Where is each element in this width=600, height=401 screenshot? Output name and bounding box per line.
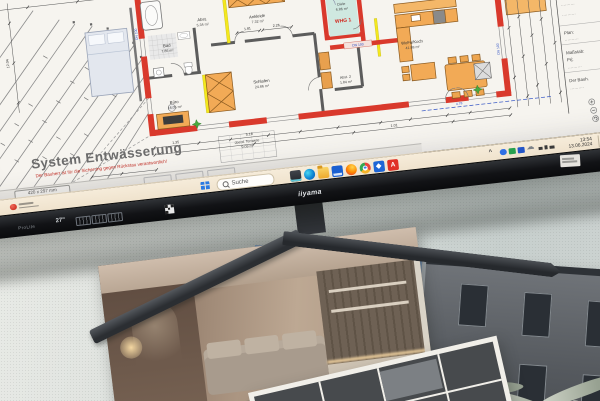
- render-window: [516, 364, 547, 401]
- svg-text:Prj:: Prj:: [567, 57, 574, 63]
- tray-app-icon[interactable]: [508, 147, 515, 154]
- hdmi-badge-icon: [75, 216, 91, 227]
- svg-text:9.09 m²: 9.09 m²: [241, 144, 254, 149]
- onedrive-icon[interactable]: ☁: [526, 142, 535, 152]
- chrome-icon[interactable]: [359, 162, 371, 174]
- svg-text:··········: ··········: [561, 1, 575, 8]
- svg-text:16.05 m²: 16.05 m²: [167, 105, 182, 111]
- firefox-icon[interactable]: [345, 163, 357, 175]
- bezel-sticker: [560, 154, 581, 167]
- widget-text-line: [19, 205, 39, 209]
- render-window: [585, 300, 600, 348]
- file-explorer-icon[interactable]: [317, 166, 329, 178]
- tray-caret-icon[interactable]: ^: [488, 149, 492, 155]
- monitor-size-label: 27": [55, 217, 65, 224]
- spec-badge-icon: [107, 212, 123, 223]
- svg-text:··········: ··········: [568, 64, 582, 71]
- svg-text:24.86 m²: 24.86 m²: [255, 84, 270, 90]
- room-labels: Abst. 5.34 m² Ankleide 7.32 m² Bad 7.86 …: [158, 0, 433, 157]
- svg-text:Der Bauh.: Der Bauh.: [569, 76, 589, 83]
- svg-text:41.88 m²: 41.88 m²: [405, 45, 420, 51]
- zoom-toolbar[interactable]: [588, 98, 599, 122]
- desktop-app-icon[interactable]: [290, 169, 302, 181]
- tray-app-icon[interactable]: [517, 146, 524, 153]
- dim-label: 12.04: [5, 59, 10, 68]
- svg-text:Bad: Bad: [163, 42, 172, 48]
- dim-label: 5.18: [246, 132, 253, 137]
- bedroom-left: [83, 8, 141, 107]
- title-block: ·········· ·········· Plan: ·········· M…: [556, 0, 600, 114]
- dim-label: 2.26: [273, 23, 280, 28]
- dim-label: 1.81: [244, 26, 251, 31]
- monitor-brand-logo: iiyama: [298, 189, 322, 199]
- svg-text:··········: ··········: [564, 36, 578, 43]
- svg-text:··········: ··········: [562, 11, 576, 18]
- network-volume-battery-icons[interactable]: [538, 143, 555, 151]
- svg-text:DN 100: DN 100: [496, 43, 501, 55]
- displayport-badge-icon: [91, 214, 107, 225]
- blue-app-icon[interactable]: [331, 165, 343, 177]
- render-plan-wall: [318, 381, 340, 401]
- shaft-box: [474, 62, 492, 80]
- desk-scene: 12.04: [0, 0, 600, 401]
- edge-icon[interactable]: [303, 168, 315, 180]
- dim-label-blue: 4.78: [456, 101, 463, 106]
- acrobat-icon[interactable]: A: [387, 158, 399, 170]
- widget-text-line: [18, 202, 33, 205]
- svg-text:1.84 m²: 1.84 m²: [340, 79, 353, 84]
- svg-text:7.32 m²: 7.32 m²: [251, 19, 264, 24]
- render-window: [521, 292, 552, 338]
- svg-text:Plan:: Plan:: [564, 30, 575, 36]
- dim-label: 1.01: [390, 123, 397, 128]
- monitor-model-label: ProLite: [18, 224, 36, 231]
- photos-app-icon[interactable]: [373, 160, 385, 172]
- refresh-icon: [592, 115, 599, 122]
- search-icon: [222, 181, 229, 188]
- svg-text:5.34 m²: 5.34 m²: [196, 22, 209, 27]
- widgets-weather-icon: [10, 203, 17, 210]
- svg-text:Maßstab:: Maßstab:: [566, 48, 585, 55]
- tray-app-icon[interactable]: [499, 148, 506, 155]
- svg-text:··········: ··········: [570, 85, 584, 92]
- qr-code-sticker: [165, 204, 175, 214]
- start-button[interactable]: [200, 181, 209, 190]
- search-label: Suche: [231, 176, 249, 188]
- render-window: [458, 283, 489, 327]
